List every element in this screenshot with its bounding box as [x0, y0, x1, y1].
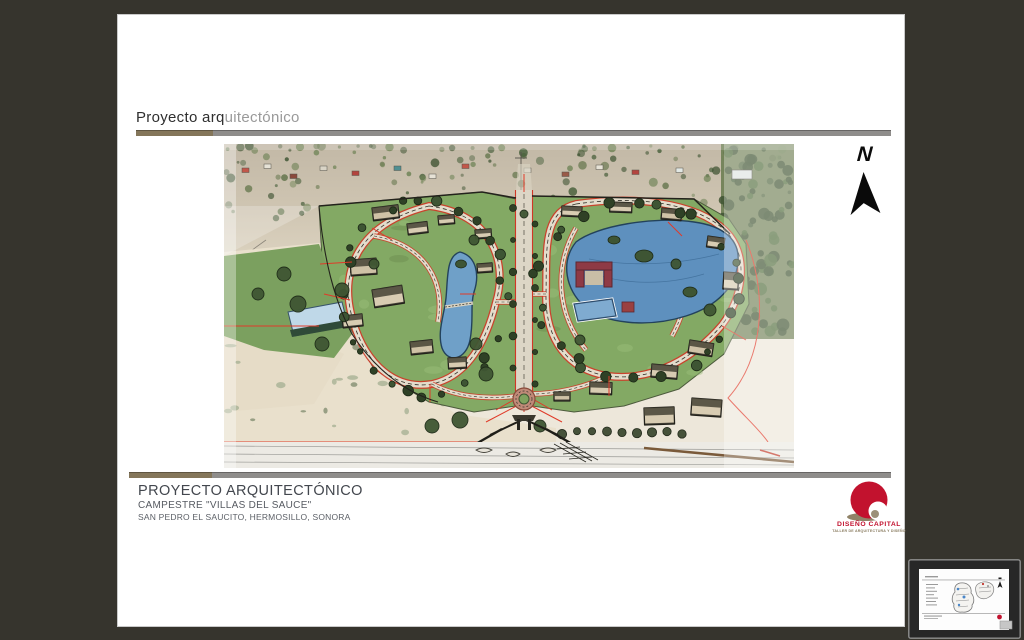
header-divider-accent: [136, 130, 213, 136]
footer-divider-accent: [129, 472, 212, 478]
project-title-block: PROYECTO ARQUITECTÓNICO CAMPESTRE "VILLA…: [138, 483, 363, 523]
diseno-capital-logo: DISEÑO CAPITAL TALLER DE ARQUITECTURA Y …: [829, 479, 909, 539]
footer-divider: [129, 472, 891, 478]
project-location: SAN PEDRO EL SAUCITO, HERMOSILLO, SONORA: [138, 512, 363, 523]
section-title-dark: Proyecto arq: [136, 109, 225, 126]
header-divider: [136, 130, 891, 136]
logo-tagline: TALLER DE ARQUITECTURA Y DISEÑO: [829, 529, 909, 533]
project-subtitle: CAMPESTRE "VILLAS DEL SAUCE": [138, 500, 363, 512]
project-title: PROYECTO ARQUITECTÓNICO: [138, 483, 363, 500]
masterplan-rendering: [224, 144, 794, 468]
section-title-light: uitectónico: [225, 109, 300, 126]
section-title: Proyecto arquitectónico: [136, 109, 300, 126]
masterplan-rendering-illustration: [224, 144, 794, 468]
siteplan-preview-illustration: [908, 559, 1021, 639]
siteplan-preview-thumbnail[interactable]: [908, 559, 1021, 639]
presentation-screen: Proyecto arquitectónico: [0, 0, 1024, 640]
slide: Proyecto arquitectónico: [117, 14, 905, 627]
north-arrow-label: N: [856, 143, 873, 167]
north-arrow-icon: [845, 170, 885, 218]
north-arrow: N: [843, 143, 891, 235]
logo-name: DISEÑO CAPITAL: [829, 521, 909, 528]
diseno-capital-logo-icon: [829, 479, 909, 523]
